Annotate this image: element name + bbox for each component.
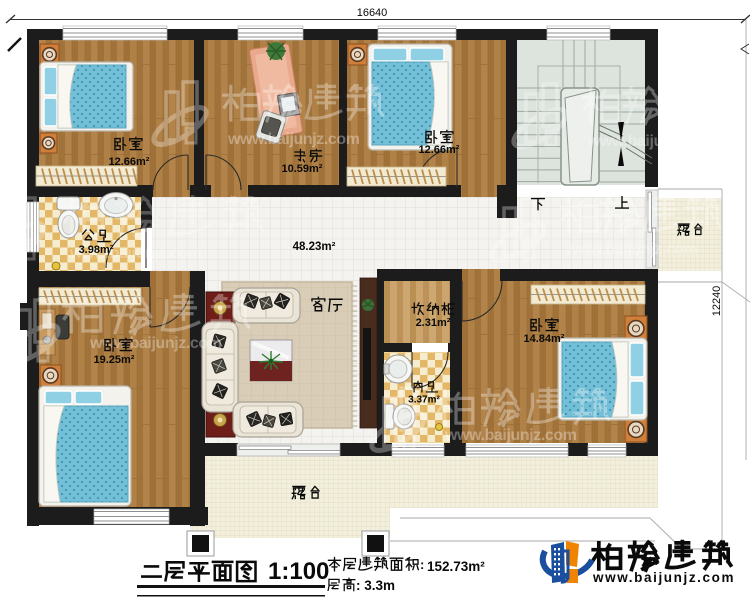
svg-text:12.66m²: 12.66m² [109, 156, 150, 168]
svg-text:14.84m²: 14.84m² [524, 333, 565, 345]
svg-text:www.baijunjz.com: www.baijunjz.com [565, 241, 698, 258]
svg-text:2.31m²: 2.31m² [416, 317, 451, 329]
svg-text:12240: 12240 [711, 286, 723, 317]
svg-text:16640: 16640 [357, 7, 388, 19]
svg-text:: 3.3m: : 3.3m [356, 578, 395, 593]
svg-text:www.baijunjz.com: www.baijunjz.com [587, 133, 720, 150]
svg-text:www.baijunjz.com: www.baijunjz.com [444, 427, 577, 444]
svg-text:10.59m²: 10.59m² [282, 163, 323, 175]
svg-text:3.37m²: 3.37m² [408, 395, 440, 406]
svg-text:12.66m²: 12.66m² [419, 144, 460, 156]
svg-text:1:100: 1:100 [268, 558, 329, 585]
svg-text:48.23m²: 48.23m² [293, 241, 336, 253]
svg-text::: : [420, 557, 424, 572]
svg-text:19.25m²: 19.25m² [94, 354, 135, 366]
svg-text:152.73m²: 152.73m² [427, 559, 485, 574]
svg-text:3.98m²: 3.98m² [79, 244, 114, 256]
svg-text:www.baijunjz.com: www.baijunjz.com [227, 131, 360, 148]
svg-text:www.baijunjz.com: www.baijunjz.com [592, 570, 735, 585]
